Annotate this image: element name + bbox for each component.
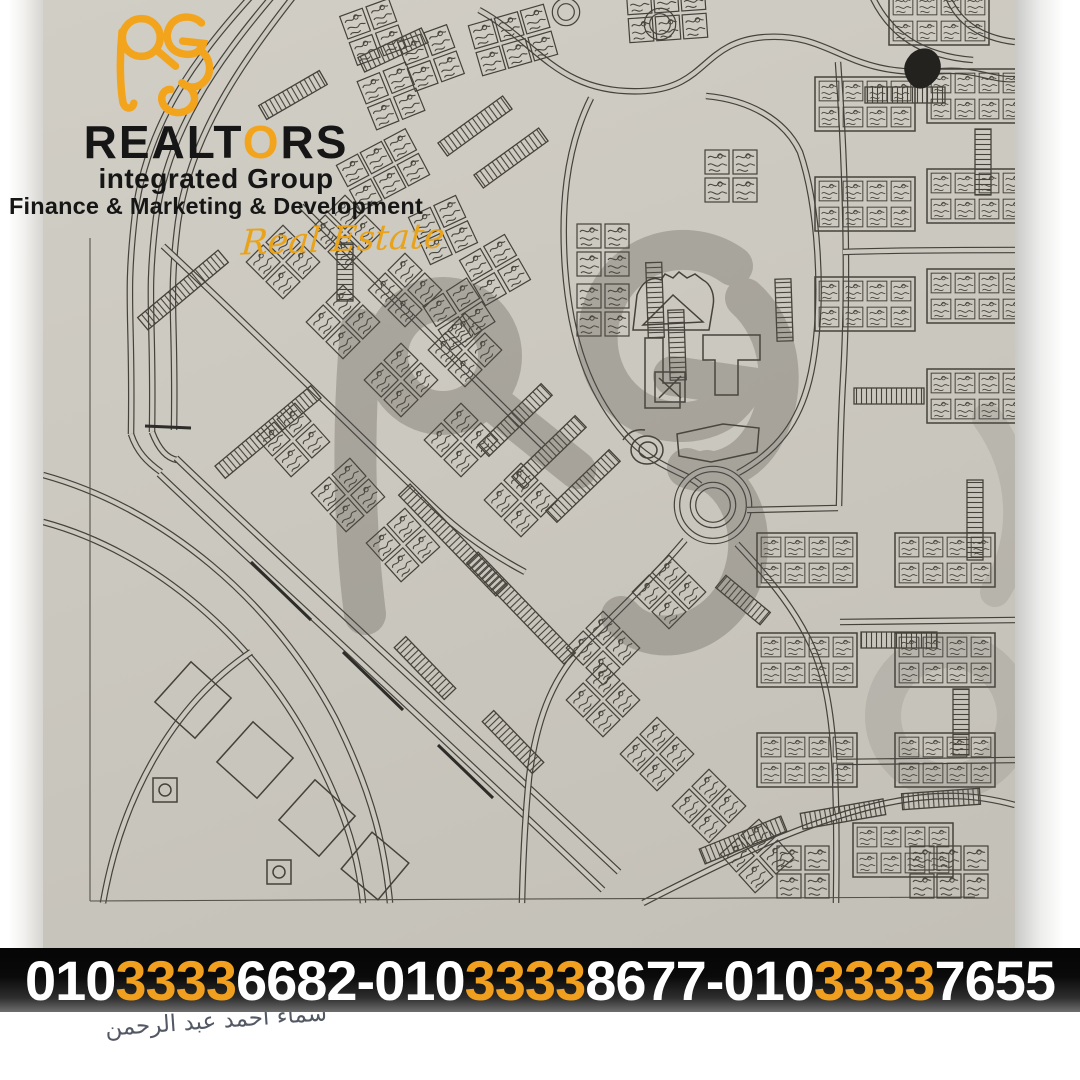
phone-digits: 8677 xyxy=(585,949,706,1012)
phone-number-2: 01033338677 xyxy=(374,948,706,1013)
phone-number-1: 01033336682 xyxy=(25,948,357,1013)
phone-digits-highlight: 3333 xyxy=(814,949,935,1012)
rg-monogram-icon xyxy=(100,4,218,130)
phone-digits: 010 xyxy=(723,949,813,1012)
brand-subtitle: integrated Group xyxy=(0,164,432,194)
right-margin-strip xyxy=(1015,0,1080,948)
brand-name-left: REALT xyxy=(84,116,243,168)
brand-name: REALTORS xyxy=(0,118,432,166)
phone-band: 01033336682-01033338677-01033337655 xyxy=(0,948,1080,1012)
phone-digits: 010 xyxy=(25,949,115,1012)
phone-digits: 010 xyxy=(374,949,464,1012)
phone-separator: - xyxy=(357,948,375,1013)
brand-script-real-estate: Real Estate xyxy=(237,216,450,263)
phone-digits-highlight: 3333 xyxy=(115,949,236,1012)
brand-tagline: Finance & Marketing & Development xyxy=(0,193,432,219)
poster-canvas: REALTORS integrated Group Finance & Mark… xyxy=(0,0,1080,1080)
phone-digits-highlight: 3333 xyxy=(465,949,586,1012)
phone-digits: 7655 xyxy=(934,949,1055,1012)
phone-digits: 6682 xyxy=(236,949,357,1012)
brand-name-right: RS xyxy=(280,116,348,168)
phone-separator: - xyxy=(706,948,724,1013)
brand-name-o: O xyxy=(243,116,281,168)
phone-number-3: 01033337655 xyxy=(723,948,1055,1013)
